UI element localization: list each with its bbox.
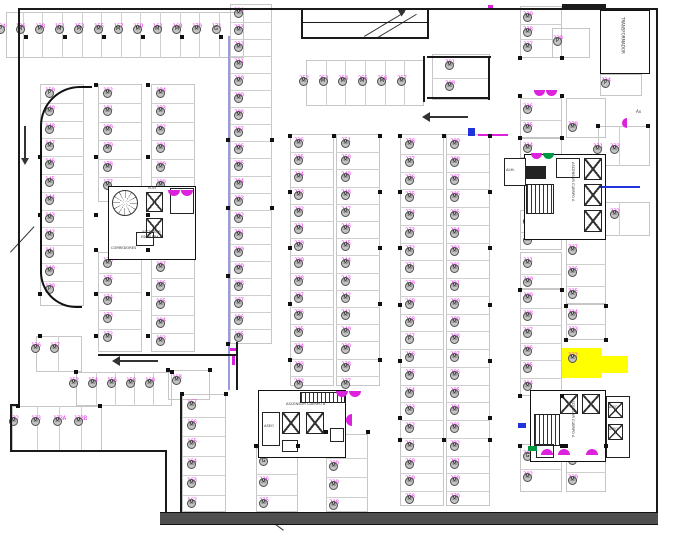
parking-stall-190[interactable]: 190M	[156, 162, 190, 179]
parking-stall-242[interactable]: 242M	[341, 293, 375, 310]
parking-stall-300[interactable]: 300M	[445, 81, 479, 98]
parking-stall-201[interactable]: 201M	[234, 230, 268, 247]
plan-line	[427, 97, 489, 99]
stall-symbol-circle: M	[523, 259, 532, 268]
parking-stall-181[interactable]: 181M	[103, 106, 137, 123]
parking-stall-279[interactable]: 279M	[450, 494, 484, 511]
parking-stall-282[interactable]: 282M	[450, 441, 484, 458]
stall-symbol-circle: M	[341, 191, 350, 200]
column-marker	[604, 444, 608, 448]
parking-stall-192[interactable]: 192M	[156, 125, 190, 142]
parking-stall-182[interactable]: 182M	[103, 88, 137, 105]
parking-stall-267[interactable]: 267P	[405, 334, 439, 351]
stall-symbol-circle: M	[294, 139, 303, 148]
parking-stall-226[interactable]: 226M	[294, 310, 328, 327]
parking-stall-286[interactable]: 286M	[450, 370, 484, 387]
column-marker	[398, 134, 402, 138]
parking-stall-276[interactable]: 276M	[405, 175, 439, 192]
stall-symbol-circle: M	[31, 344, 40, 353]
parking-stall-191[interactable]: 191M	[156, 143, 190, 160]
parking-stall-317[interactable]: 317M	[523, 42, 557, 59]
parking-stall-217[interactable]: 217G	[259, 456, 293, 473]
stall-symbol-circle: M	[450, 371, 459, 380]
parking-stall-195[interactable]: 195M	[234, 332, 268, 349]
parking-stall-247[interactable]: 247M	[341, 207, 375, 224]
plan-label: ASCENSOR CUERPO B	[286, 402, 325, 406]
parking-stall-268[interactable]: 268M	[405, 317, 439, 334]
parking-stall-204[interactable]: 204M	[234, 179, 268, 196]
stall-symbol-circle: M	[405, 300, 414, 309]
parking-stall-294[interactable]: 294M	[450, 228, 484, 245]
parking-stall-175[interactable]: 175M	[103, 276, 137, 293]
parking-stall-147[interactable]: 147M	[45, 141, 79, 158]
parking-stall-261[interactable]: 261M	[405, 441, 439, 458]
stall-symbol-circle: M	[341, 311, 350, 320]
stall-symbol-circle: M	[294, 311, 303, 320]
stall-symbol-circle: M	[450, 495, 459, 504]
parking-stall-250[interactable]: 250M	[341, 155, 375, 172]
stall-symbol-circle: M	[341, 242, 350, 251]
parking-stall-273[interactable]: 273M	[405, 228, 439, 245]
down-arrow-icon	[21, 158, 29, 165]
parking-stall-266[interactable]: 266M	[405, 352, 439, 369]
stall-symbol-circle: M	[50, 344, 59, 353]
parking-stall-245[interactable]: 245M	[341, 241, 375, 258]
column-marker	[332, 134, 336, 138]
parking-stall-224[interactable]: 224M	[294, 344, 328, 361]
plan-line	[600, 186, 640, 188]
parking-stall-288[interactable]: 288M	[450, 334, 484, 351]
door-swing-arc	[622, 118, 627, 128]
parking-stall-238[interactable]: 238M	[341, 362, 375, 379]
column-marker	[604, 338, 608, 342]
parking-stall-299[interactable]: 299M	[450, 139, 484, 156]
parking-stall-298[interactable]: 298M	[450, 157, 484, 174]
parking-stall-332[interactable]: 332M	[610, 209, 644, 226]
stall-symbol-circle: M	[450, 247, 459, 256]
parking-stall-199[interactable]: 199M	[234, 264, 268, 281]
stall-symbol-circle: M	[234, 145, 243, 154]
parking-stall-142[interactable]: 142M	[45, 230, 79, 247]
parking-stall-295[interactable]: 295M	[450, 210, 484, 227]
stall-symbol-circle: P	[0, 25, 5, 34]
plan-label: ASEO	[264, 424, 274, 428]
parking-stall-202[interactable]: 202M	[234, 213, 268, 230]
stall-symbol-circle: M	[69, 379, 78, 388]
parking-stall-207[interactable]: 207M	[234, 127, 268, 144]
plan-label: Ax	[636, 110, 641, 115]
parking-stall-307[interactable]: 307M	[523, 328, 557, 345]
parking-stall-232[interactable]: 232M	[294, 207, 328, 224]
plan-line	[478, 134, 508, 136]
parking-stall-219[interactable]: 219M	[329, 480, 363, 497]
parking-stall-167[interactable]: 167M	[187, 400, 221, 417]
parking-stall-184[interactable]: 184M	[156, 318, 190, 335]
stall-symbol-circle: M	[523, 43, 532, 52]
column-marker	[288, 190, 292, 194]
column-marker	[146, 334, 150, 338]
parking-stall-248[interactable]: 248M	[341, 190, 375, 207]
parking-stall-143[interactable]: 143M	[45, 213, 79, 230]
stall-symbol-circle: M	[156, 89, 165, 98]
parking-stall-275[interactable]: 275M	[405, 192, 439, 209]
stall-symbol-circle: M	[234, 26, 243, 35]
parking-stall-309[interactable]: 309M	[523, 293, 557, 310]
parking-stall-186[interactable]: 186M	[156, 281, 190, 298]
parking-stall-164[interactable]: 164M	[187, 459, 221, 476]
selected-stall-highlight	[600, 356, 628, 373]
parking-stall-333[interactable]: 333M	[610, 144, 644, 161]
column-marker	[296, 444, 300, 448]
parking-stall-243[interactable]: 243M	[341, 276, 375, 293]
parking-stall-263[interactable]: 263M	[405, 405, 439, 422]
parking-stall-326[interactable]: 326M	[568, 267, 602, 284]
parking-stall-235[interactable]: 235M	[294, 155, 328, 172]
parking-stall-289[interactable]: 289M	[450, 317, 484, 334]
stall-symbol-circle: M	[294, 380, 303, 389]
stall-symbol-circle: M	[103, 259, 112, 268]
plan-label: ASCENSOR CUERPO A	[571, 398, 575, 437]
parking-stall-194[interactable]: 194M	[156, 88, 190, 105]
parking-stall-203[interactable]: 203M	[234, 196, 268, 213]
stall-symbol-circle: M	[156, 282, 165, 291]
stall-symbol-circle: M	[187, 401, 196, 410]
stall-symbol-circle: M	[156, 300, 165, 309]
stall-symbol-circle: M	[103, 277, 112, 286]
parking-stall-214[interactable]: 214M	[234, 8, 268, 25]
parking-stall-270[interactable]: 270M	[405, 281, 439, 298]
parking-stall-302[interactable]: 302M	[523, 472, 557, 489]
parking-stall-193[interactable]: 193M	[156, 106, 190, 123]
parking-stall-227[interactable]: 227M	[294, 293, 328, 310]
parking-stall-196[interactable]: 196M	[234, 315, 268, 332]
parking-stall-274[interactable]: 274M	[405, 210, 439, 227]
stall-symbol-circle: M	[294, 191, 303, 200]
parking-stall-210[interactable]: 210M	[234, 76, 268, 93]
column-marker	[170, 370, 174, 374]
stall-symbol-circle: M	[153, 25, 162, 34]
column-marker	[560, 394, 564, 398]
plan-label: ASEO	[609, 428, 618, 432]
stall-symbol-circle: M	[593, 145, 602, 154]
column-marker	[518, 56, 522, 60]
stall-symbol-circle: M	[187, 421, 196, 430]
parking-stall-297[interactable]: 297M	[450, 175, 484, 192]
parking-stall-265[interactable]: 265M	[405, 370, 439, 387]
plan-label: ESCALERA 1	[141, 236, 162, 240]
parking-stall-216[interactable]: 216M	[259, 477, 293, 494]
stall-symbol-circle: M	[338, 77, 347, 86]
column-marker	[288, 134, 292, 138]
stall-symbol-circle: M	[133, 25, 142, 34]
stall-symbol-circle: M	[329, 462, 338, 471]
stall-symbol-circle: M	[405, 353, 414, 362]
stall-symbol-circle: M	[45, 178, 54, 187]
stall-symbol-circle: M	[450, 406, 459, 415]
stall-symbol-circle: M	[445, 82, 454, 91]
parking-stall-277[interactable]: 277M	[405, 157, 439, 174]
parking-stall-176[interactable]: 176M	[103, 258, 137, 275]
parking-stall-220[interactable]: 220M	[329, 461, 363, 478]
stall-symbol-circle: M	[341, 380, 350, 389]
parking-stall-200[interactable]: 200M	[234, 247, 268, 264]
column-marker	[180, 392, 184, 396]
parking-stall-278[interactable]: 278M	[405, 139, 439, 156]
column-marker	[518, 444, 522, 448]
parking-stall-259[interactable]: 259M	[405, 476, 439, 493]
parking-stall-258[interactable]: 258M	[405, 494, 439, 511]
stall-symbol-circle: M	[294, 363, 303, 372]
stall-symbol-circle: M	[568, 290, 577, 299]
column-marker	[378, 134, 382, 138]
parking-stall-172[interactable]: 172M	[103, 332, 137, 349]
column-marker	[488, 416, 492, 420]
column-marker	[94, 334, 98, 338]
parking-stall-329[interactable]: 329P	[553, 36, 587, 53]
stall-symbol-circle: M	[294, 242, 303, 251]
stall-symbol-circle: M	[523, 473, 532, 482]
column-marker	[366, 430, 370, 434]
parking-stall-198[interactable]: 198M	[234, 281, 268, 298]
parking-stall-211[interactable]: 211M	[234, 59, 268, 76]
elevator-shaft	[584, 210, 602, 232]
parking-stall-174[interactable]: 174M	[103, 295, 137, 312]
parking-stall-228[interactable]: 228M	[294, 276, 328, 293]
parking-stall-183[interactable]: 183M	[156, 336, 190, 353]
parking-stall-205[interactable]: 205M	[234, 161, 268, 178]
parking-stall-290[interactable]: 290M	[450, 299, 484, 316]
stall-symbol-circle: M	[341, 139, 350, 148]
parking-stall-234[interactable]: 234M	[294, 172, 328, 189]
parking-stall-208[interactable]: 208M	[234, 110, 268, 127]
parking-stall-291[interactable]: 291M	[450, 281, 484, 298]
stall-symbol-circle: M	[405, 477, 414, 486]
column-marker	[146, 83, 150, 87]
parking-stall-178[interactable]: 178M	[103, 162, 137, 179]
column-marker	[488, 190, 492, 194]
parking-stall-315[interactable]: 315M	[523, 123, 557, 140]
parking-stall-269[interactable]: 269M	[405, 299, 439, 316]
parking-stall-264[interactable]: 264M	[405, 388, 439, 405]
parking-stall-165[interactable]: 165M	[187, 439, 221, 456]
stall-symbol-circle: M	[341, 363, 350, 372]
wall-segment	[301, 37, 429, 39]
parking-stall-166[interactable]: 166M	[187, 420, 221, 437]
parking-stall-246[interactable]: 246M	[341, 224, 375, 241]
parking-stall-229[interactable]: 229M	[294, 258, 328, 275]
parking-stall-233[interactable]: 233M	[294, 190, 328, 207]
parking-stall-296[interactable]: 296M	[450, 192, 484, 209]
parking-stall-325[interactable]: 325M	[568, 289, 602, 306]
plan-line	[468, 128, 475, 136]
parking-stall-327[interactable]: 327M	[568, 245, 602, 262]
wall-segment	[10, 450, 167, 452]
stall-symbol-circle: M	[450, 229, 459, 238]
parking-stall-285[interactable]: 285M	[450, 388, 484, 405]
stall-symbol-circle: M	[405, 442, 414, 451]
parking-stall-316[interactable]: 316M	[523, 104, 557, 121]
stall-symbol-circle: M	[234, 316, 243, 325]
stall-symbol-circle: M	[259, 478, 268, 487]
plan-label: TRANSFORMADOR	[620, 17, 625, 54]
parking-stall-301[interactable]: 301M	[445, 60, 479, 77]
parking-stall-236[interactable]: 236M	[294, 138, 328, 155]
parking-stall-271[interactable]: 271M	[405, 263, 439, 280]
parking-stall-141[interactable]: 141M	[45, 248, 79, 265]
parking-stall-213[interactable]: 213M	[234, 25, 268, 42]
stall-symbol-circle: M	[450, 176, 459, 185]
wall-segment	[656, 8, 658, 525]
arrow-shaft	[24, 126, 26, 158]
parking-stall-179[interactable]: 179M	[103, 143, 137, 160]
column-marker	[488, 438, 492, 442]
parking-stall-173[interactable]: 173M	[103, 313, 137, 330]
stall-symbol-circle: M	[126, 379, 135, 388]
plan-line	[232, 356, 235, 365]
column-marker	[398, 303, 402, 307]
stall-symbol-circle: M	[341, 294, 350, 303]
parking-stall-241[interactable]: 241M	[341, 310, 375, 327]
stall-symbol-circle: M	[299, 77, 308, 86]
stall-symbol-circle: M	[45, 142, 54, 151]
column-marker	[324, 430, 328, 434]
column-marker	[488, 303, 492, 307]
parking-stall-168[interactable]: 168M	[172, 375, 206, 392]
plan-line	[488, 56, 490, 100]
parking-stall-257[interactable]: 257M	[397, 76, 431, 93]
stall-symbol-circle: M	[234, 282, 243, 291]
parking-stall-230[interactable]: 230M	[294, 241, 328, 258]
parking-stall-281[interactable]: 281M	[450, 459, 484, 476]
parking-stall-283[interactable]: 283M	[450, 423, 484, 440]
parking-stall-292[interactable]: 292M	[450, 263, 484, 280]
stall-symbol-circle: M	[234, 248, 243, 257]
parking-stall-197[interactable]: 197M	[234, 298, 268, 315]
stall-symbol-circle: M	[523, 28, 532, 37]
stall-symbol-circle: M	[341, 156, 350, 165]
parking-stall-180[interactable]: 180M	[103, 125, 137, 142]
parking-stall-244[interactable]: 244M	[341, 258, 375, 275]
elevator-shaft	[146, 192, 163, 212]
stall-symbol-circle: M	[523, 329, 532, 338]
stall-symbol-circle: M	[103, 107, 112, 116]
parking-stall-306[interactable]: 306M	[523, 346, 557, 363]
parking-stall-308[interactable]: 308M	[523, 311, 557, 328]
wall-segment	[301, 8, 303, 39]
column-marker	[146, 248, 150, 252]
stall-symbol-circle: M	[103, 89, 112, 98]
column-marker	[146, 213, 150, 217]
parking-stall-320[interactable]: 320M	[568, 475, 602, 492]
parking-stall-287[interactable]: 287M	[450, 352, 484, 369]
stall-symbol-circle: M	[341, 345, 350, 354]
stall-symbol-circle: M	[523, 278, 532, 287]
column-marker	[442, 438, 446, 442]
stall-symbol-circle: M	[234, 231, 243, 240]
parking-stall-251[interactable]: 251M	[341, 138, 375, 155]
parking-stall-145[interactable]: 145M	[45, 177, 79, 194]
parking-stall-137[interactable]: 137M	[50, 343, 84, 360]
stall-symbol-circle: M	[192, 25, 201, 34]
parking-stall-310[interactable]: 310M	[523, 277, 557, 294]
parking-stall-240[interactable]: 240M	[341, 327, 375, 344]
stall-symbol-circle: M	[234, 111, 243, 120]
parking-stall-163[interactable]: 163M	[187, 478, 221, 495]
stall-symbol-circle: M	[329, 481, 338, 490]
parking-stall-212[interactable]: 212M	[234, 42, 268, 59]
parking-stall-223[interactable]: 223M	[294, 362, 328, 379]
parking-stall-187[interactable]: 187M	[156, 262, 190, 279]
stall-symbol-circle: M	[568, 476, 577, 485]
parking-stall-262[interactable]: 262M	[405, 423, 439, 440]
parking-stall-249[interactable]: 249M	[341, 172, 375, 189]
column-marker	[16, 404, 20, 408]
stall-symbol-circle: M	[568, 328, 577, 337]
parking-stall-144[interactable]: 144M	[45, 195, 79, 212]
parking-stall-239[interactable]: 239M	[341, 344, 375, 361]
stall-symbol-circle: M	[234, 128, 243, 137]
parking-stall-231[interactable]: 231M	[294, 224, 328, 241]
stall-symbol-circle: M	[294, 345, 303, 354]
parking-stall-305[interactable]: 305M	[523, 363, 557, 380]
column-marker	[398, 190, 402, 194]
parking-stall-146[interactable]: 146M	[45, 159, 79, 176]
parking-stall-209[interactable]: 209M	[234, 93, 268, 110]
parking-stall-185[interactable]: 185M	[156, 299, 190, 316]
parking-stall-272[interactable]: 272M	[405, 246, 439, 263]
parking-stall-311[interactable]: 311M	[523, 258, 557, 275]
column-marker	[378, 246, 382, 250]
plan-label: ASCENSOR CUERPO A	[571, 162, 575, 201]
column-marker	[270, 138, 274, 142]
stall-symbol-circle: M	[103, 333, 112, 342]
parking-stall-324[interactable]: 324M	[568, 310, 602, 327]
parking-stall-323[interactable]: 323M	[568, 327, 602, 344]
stall-symbol-circle: M	[405, 318, 414, 327]
parking-stall-284[interactable]: 284M	[450, 405, 484, 422]
parking-stall-280[interactable]: 280M	[450, 476, 484, 493]
column-marker	[63, 35, 67, 39]
stall-symbol-circle: M	[450, 477, 459, 486]
stall-symbol-circle: M	[405, 158, 414, 167]
column-marker	[146, 292, 150, 296]
stall-symbol-circle: M	[450, 389, 459, 398]
parking-stall-322[interactable]: 322M	[568, 353, 602, 370]
parking-stall-206[interactable]: 206M	[234, 144, 268, 161]
parking-stall-133B[interactable]: 133BM	[74, 416, 108, 433]
plan-label: CORREDORES	[111, 246, 136, 250]
column-marker	[604, 304, 608, 308]
parking-stall-225[interactable]: 225M	[294, 327, 328, 344]
parking-stall-334[interactable]: 334P	[601, 78, 635, 95]
stall-symbol-circle: M	[74, 25, 83, 34]
stall-symbol-circle: M	[445, 61, 454, 70]
stall-symbol-circle: M	[45, 196, 54, 205]
stall-symbol-circle: M	[405, 460, 414, 469]
stall-symbol-circle: M	[234, 60, 243, 69]
bay-divider	[256, 474, 298, 475]
stall-symbol-circle: M	[103, 163, 112, 172]
parking-stall-293[interactable]: 293M	[450, 246, 484, 263]
stall-symbol-circle: M	[405, 193, 414, 202]
column-marker	[38, 292, 42, 296]
bay-divider	[256, 495, 298, 496]
column-marker	[38, 334, 42, 338]
column-marker	[564, 338, 568, 342]
stall-symbol-circle: M	[405, 495, 414, 504]
stall-symbol-circle: M	[294, 156, 303, 165]
parking-stall-260[interactable]: 260M	[405, 459, 439, 476]
